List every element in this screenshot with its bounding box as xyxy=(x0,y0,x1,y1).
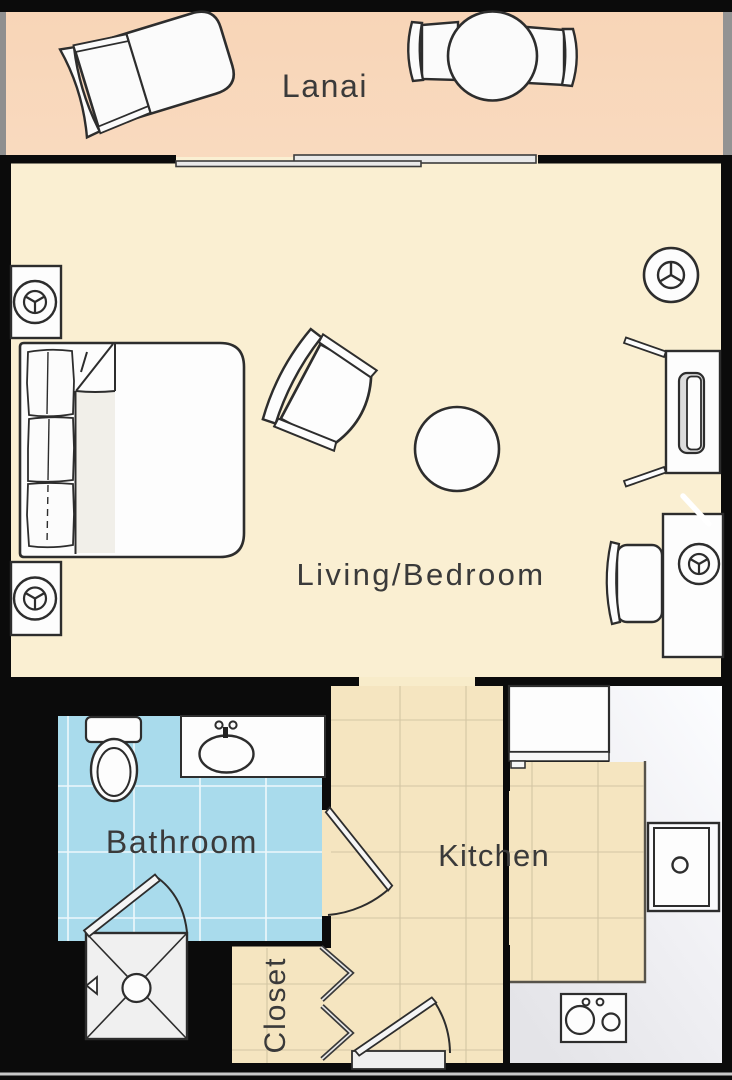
svg-text:Closet: Closet xyxy=(259,956,292,1053)
svg-text:Bathroom: Bathroom xyxy=(106,824,258,860)
svg-text:Kitchen: Kitchen xyxy=(438,838,550,873)
svg-text:Living/Bedroom: Living/Bedroom xyxy=(297,557,546,592)
svg-text:Lanai: Lanai xyxy=(282,68,368,104)
